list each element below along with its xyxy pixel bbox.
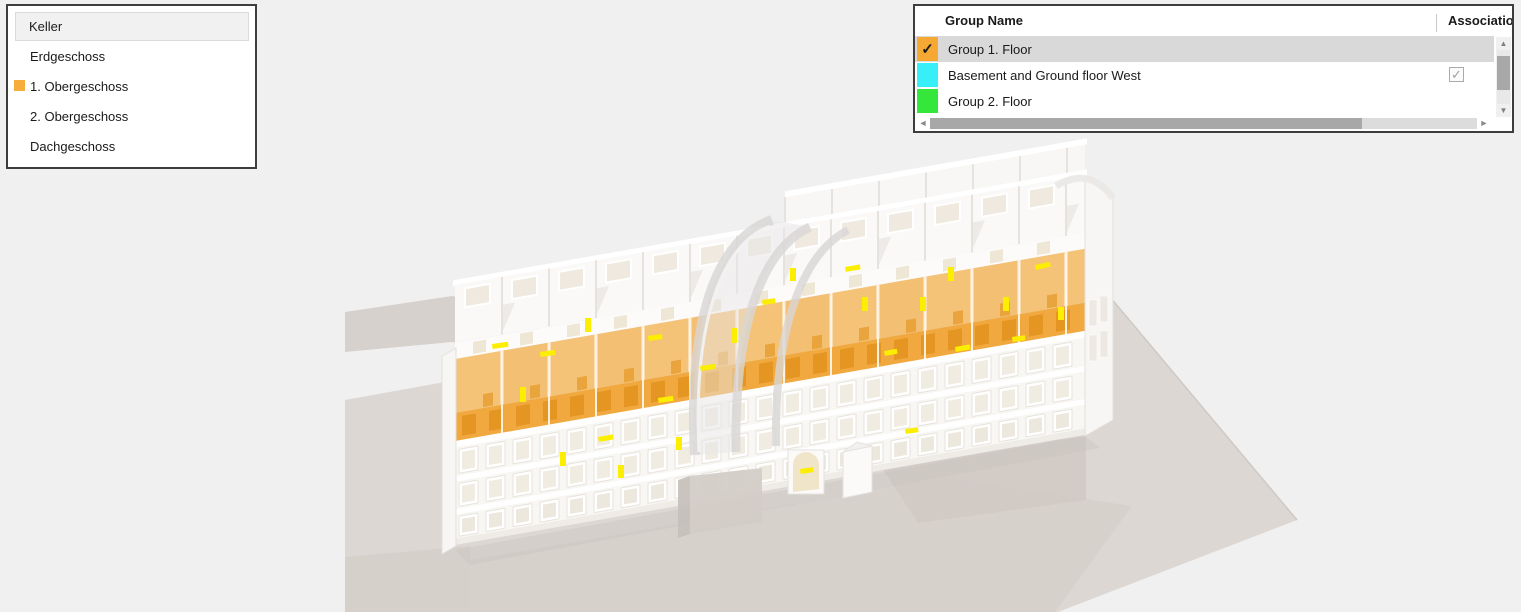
app-root: { "app": { "background": "#F0F0F0" }, "i…: [0, 0, 1521, 612]
floor-item-keller[interactable]: Keller: [15, 12, 249, 41]
floor-item-label: Keller: [16, 19, 62, 34]
vertical-scroll-track[interactable]: [1497, 50, 1510, 104]
groups-table-header: Group Name Association: [915, 6, 1512, 36]
floor-item-label: 1. Obergeschoss: [8, 79, 128, 94]
group-name: Group 1. Floor: [948, 42, 1032, 57]
groups-panel: Group Name Association ✓ Group 1. Floor …: [913, 4, 1514, 133]
association-checkbox-checked[interactable]: ✓: [1449, 67, 1464, 82]
horizontal-scroll-track[interactable]: [930, 118, 1477, 129]
group-row-group-1-floor[interactable]: ✓ Group 1. Floor: [915, 36, 1494, 62]
floor-item-label: Dachgeschoss: [8, 139, 115, 154]
scroll-up-icon[interactable]: ▲: [1500, 37, 1508, 50]
vertical-scrollbar[interactable]: ▲ ▼: [1496, 37, 1511, 117]
floor-item-erdgeschoss[interactable]: Erdgeschoss: [8, 41, 255, 71]
group-row-basement-and-ground-floor-west[interactable]: Basement and Ground floor West ✓: [915, 62, 1494, 88]
check-icon: ✓: [1451, 67, 1462, 82]
group-color-swatch-checked[interactable]: ✓: [917, 37, 938, 61]
horizontal-scroll-thumb[interactable]: [930, 118, 1362, 129]
floor-item-dachgeschoss[interactable]: Dachgeschoss: [8, 131, 255, 161]
floor-item-label: Erdgeschoss: [8, 49, 105, 64]
group-color-swatch[interactable]: [917, 63, 938, 87]
floors-panel: Keller Erdgeschoss 1. Obergeschoss 2. Ob…: [6, 4, 257, 169]
scroll-right-icon[interactable]: ►: [1479, 117, 1489, 129]
floor-item-2-obergeschoss[interactable]: 2. Obergeschoss: [8, 101, 255, 131]
scroll-left-icon[interactable]: ◄: [918, 117, 928, 129]
group-name: Basement and Ground floor West: [948, 68, 1141, 83]
west-end-wall: [442, 348, 456, 554]
column-header-group-name: Group Name: [945, 13, 1023, 28]
column-divider: [1436, 14, 1437, 32]
horizontal-scrollbar[interactable]: ◄ ►: [918, 117, 1489, 129]
vertical-scroll-thumb[interactable]: [1497, 56, 1510, 90]
group-row-group-2-floor[interactable]: Group 2. Floor: [915, 88, 1494, 114]
group-color-swatch[interactable]: [917, 89, 938, 113]
group-name: Group 2. Floor: [948, 94, 1032, 109]
check-icon: ✓: [921, 40, 934, 58]
floor-item-1-obergeschoss[interactable]: 1. Obergeschoss: [8, 71, 255, 101]
floor-item-label: 2. Obergeschoss: [8, 109, 128, 124]
scroll-down-icon[interactable]: ▼: [1500, 104, 1508, 117]
floor-color-swatch: [14, 80, 25, 91]
column-header-association: Association: [1448, 13, 1514, 28]
